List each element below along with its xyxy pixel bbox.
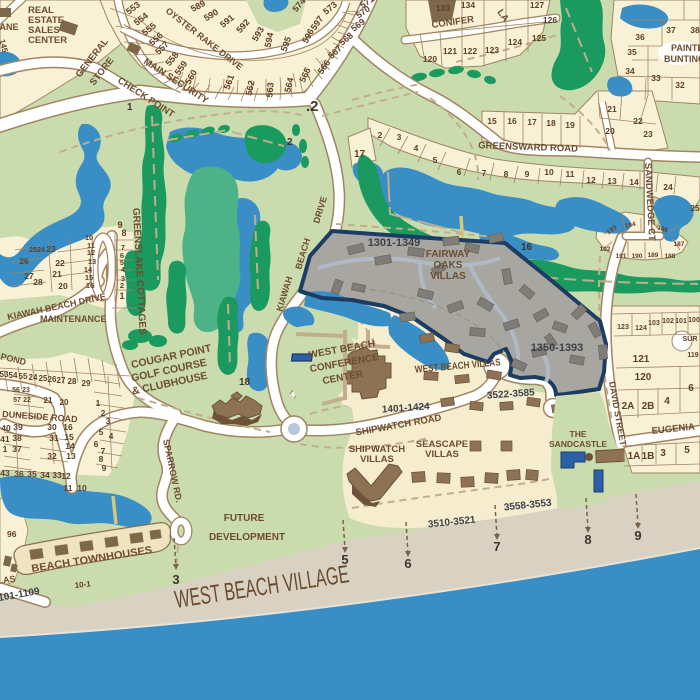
- svg-text:126: 126: [543, 15, 557, 25]
- svg-text:41: 41: [0, 434, 10, 444]
- svg-text:188: 188: [665, 253, 676, 260]
- svg-text:5: 5: [341, 552, 348, 567]
- svg-text:1B: 1B: [642, 451, 655, 462]
- svg-text:190: 190: [632, 253, 643, 260]
- svg-text:40: 40: [1, 423, 11, 433]
- svg-text:18: 18: [546, 118, 556, 128]
- svg-text:20: 20: [605, 126, 615, 136]
- svg-text:43: 43: [0, 468, 10, 478]
- svg-text:28: 28: [68, 377, 77, 386]
- svg-text:5: 5: [433, 155, 438, 165]
- svg-text:SANDCASTLE: SANDCASTLE: [549, 439, 607, 449]
- svg-text:6: 6: [457, 167, 462, 177]
- svg-text:127: 127: [530, 0, 544, 10]
- svg-text:12: 12: [586, 175, 596, 185]
- svg-text:3: 3: [397, 132, 402, 142]
- svg-text:11: 11: [566, 169, 575, 179]
- svg-text:7: 7: [482, 168, 487, 178]
- svg-text:123: 123: [617, 324, 629, 331]
- svg-text:11: 11: [64, 483, 73, 493]
- svg-text:17: 17: [354, 149, 366, 160]
- svg-text:14: 14: [629, 177, 639, 187]
- svg-text:37: 37: [12, 444, 22, 454]
- svg-text:32: 32: [47, 451, 57, 461]
- svg-text:2: 2: [120, 281, 124, 290]
- svg-text:8: 8: [121, 228, 126, 238]
- svg-text:10: 10: [77, 483, 87, 493]
- svg-text:2: 2: [378, 130, 383, 140]
- svg-text:16: 16: [521, 242, 533, 253]
- svg-text:1301-1349: 1301-1349: [368, 237, 421, 249]
- svg-text:MAINTENANCE: MAINTENANCE: [40, 314, 107, 324]
- svg-text:124: 124: [508, 37, 522, 47]
- svg-text:28: 28: [33, 277, 43, 287]
- svg-text:34: 34: [40, 470, 50, 480]
- svg-text:1: 1: [119, 291, 124, 301]
- svg-text:36: 36: [635, 32, 645, 42]
- svg-text:27: 27: [57, 376, 66, 385]
- svg-text:1: 1: [127, 102, 133, 113]
- svg-text:1: 1: [96, 398, 101, 408]
- svg-text:VILLAS: VILLAS: [430, 271, 466, 282]
- svg-text:3: 3: [106, 416, 111, 426]
- svg-text:24: 24: [663, 182, 673, 192]
- svg-text:563: 563: [264, 82, 275, 98]
- svg-text:35: 35: [627, 47, 637, 57]
- svg-text:133: 133: [436, 3, 450, 13]
- svg-text:21: 21: [607, 104, 617, 114]
- svg-text:23: 23: [643, 129, 653, 139]
- svg-text:39: 39: [13, 422, 23, 432]
- svg-text:119: 119: [687, 352, 698, 359]
- svg-text:2B: 2B: [642, 401, 655, 412]
- svg-text:33: 33: [651, 73, 661, 83]
- svg-text:THE: THE: [570, 429, 587, 439]
- svg-text:8: 8: [584, 532, 591, 547]
- svg-text:5: 5: [684, 445, 690, 456]
- svg-text:7: 7: [493, 539, 500, 554]
- svg-text:122: 122: [463, 46, 477, 56]
- svg-text:96: 96: [7, 529, 17, 539]
- svg-text:102: 102: [662, 318, 674, 325]
- svg-text:57: 57: [13, 397, 21, 404]
- svg-text:12: 12: [61, 471, 71, 481]
- svg-text:22: 22: [55, 258, 65, 268]
- svg-text:SUR: SUR: [683, 336, 698, 343]
- svg-text:24: 24: [37, 247, 45, 254]
- svg-text:16: 16: [507, 116, 517, 126]
- svg-text:OAKS: OAKS: [434, 260, 463, 271]
- svg-text:DEVELOPMENT: DEVELOPMENT: [209, 532, 285, 543]
- svg-text:30: 30: [47, 422, 57, 432]
- svg-text:21: 21: [44, 396, 53, 405]
- svg-text:FUTURE: FUTURE: [224, 513, 265, 524]
- svg-text:1A: 1A: [628, 451, 641, 462]
- svg-text:17: 17: [527, 117, 537, 127]
- svg-text:FAIRWAY: FAIRWAY: [426, 249, 471, 260]
- svg-text:9: 9: [525, 169, 530, 179]
- svg-text:3: 3: [172, 572, 179, 587]
- svg-text:120: 120: [423, 54, 437, 64]
- svg-text:22: 22: [23, 397, 31, 404]
- svg-text:10-1: 10-1: [74, 579, 91, 590]
- svg-text:18: 18: [239, 377, 251, 388]
- svg-text:56: 56: [12, 387, 20, 394]
- svg-text:1: 1: [3, 444, 8, 454]
- svg-text:26: 26: [19, 256, 29, 266]
- svg-text:134: 134: [461, 0, 475, 10]
- svg-text:16: 16: [86, 281, 94, 290]
- svg-text:9: 9: [102, 463, 107, 473]
- svg-text:54: 54: [9, 371, 18, 380]
- svg-text:LANE: LANE: [0, 22, 19, 32]
- svg-text:PAINTED: PAINTED: [671, 43, 700, 53]
- svg-text:BUNTING LN: BUNTING LN: [664, 54, 700, 64]
- svg-text:20: 20: [60, 398, 69, 407]
- svg-text:20: 20: [58, 281, 68, 291]
- svg-text:23: 23: [46, 244, 56, 254]
- svg-text:4: 4: [664, 396, 670, 407]
- svg-text:120: 120: [635, 372, 652, 383]
- svg-text:13: 13: [607, 176, 617, 186]
- svg-text:19: 19: [565, 120, 575, 130]
- svg-text:25: 25: [29, 247, 37, 254]
- svg-text:3: 3: [660, 448, 666, 459]
- svg-text:CENTER: CENTER: [28, 35, 67, 46]
- svg-text:22: 22: [633, 116, 643, 126]
- svg-text:8: 8: [504, 169, 509, 179]
- svg-text:2: 2: [287, 137, 293, 148]
- svg-text:VILLAS: VILLAS: [360, 454, 394, 465]
- svg-text:.2: .2: [306, 98, 319, 115]
- svg-text:12: 12: [87, 248, 95, 257]
- svg-text:6: 6: [94, 439, 99, 449]
- svg-text:35: 35: [27, 469, 37, 479]
- svg-text:38: 38: [690, 25, 700, 35]
- svg-text:36: 36: [14, 469, 24, 479]
- svg-text:121: 121: [443, 46, 457, 56]
- svg-text:21: 21: [52, 269, 62, 279]
- svg-text:103: 103: [648, 320, 660, 327]
- svg-text:5: 5: [99, 427, 104, 437]
- svg-text:23: 23: [22, 387, 30, 394]
- svg-text:14: 14: [65, 441, 75, 451]
- svg-text:2A: 2A: [622, 401, 635, 412]
- svg-text:6: 6: [688, 383, 694, 394]
- svg-text:31: 31: [49, 433, 59, 443]
- svg-text:123: 123: [485, 45, 499, 55]
- svg-text:189: 189: [648, 252, 659, 259]
- svg-text:121: 121: [633, 354, 650, 365]
- svg-text:100: 100: [688, 317, 700, 324]
- svg-text:25: 25: [690, 203, 700, 213]
- svg-text:6: 6: [404, 556, 411, 571]
- svg-text:124: 124: [635, 325, 647, 332]
- svg-text:55: 55: [19, 372, 28, 381]
- svg-text:4: 4: [109, 431, 114, 441]
- svg-text:34: 34: [625, 66, 635, 76]
- svg-text:9: 9: [634, 528, 641, 543]
- svg-text:13: 13: [66, 451, 76, 461]
- svg-text:15: 15: [487, 116, 497, 126]
- svg-text:24: 24: [29, 373, 38, 382]
- svg-text:VILLAS: VILLAS: [425, 449, 459, 460]
- svg-text:101: 101: [675, 318, 687, 325]
- svg-text:32: 32: [675, 80, 685, 90]
- svg-text:191: 191: [616, 253, 627, 260]
- svg-text:16: 16: [63, 422, 73, 432]
- svg-text:10: 10: [544, 167, 554, 177]
- svg-text:1350-1393: 1350-1393: [531, 342, 584, 354]
- svg-text:4: 4: [414, 143, 419, 153]
- svg-text:29: 29: [82, 379, 91, 388]
- svg-text:187: 187: [674, 241, 685, 248]
- svg-text:192: 192: [600, 246, 611, 253]
- svg-text:38: 38: [12, 433, 22, 443]
- svg-text:125: 125: [532, 33, 546, 43]
- svg-text:37: 37: [666, 25, 676, 35]
